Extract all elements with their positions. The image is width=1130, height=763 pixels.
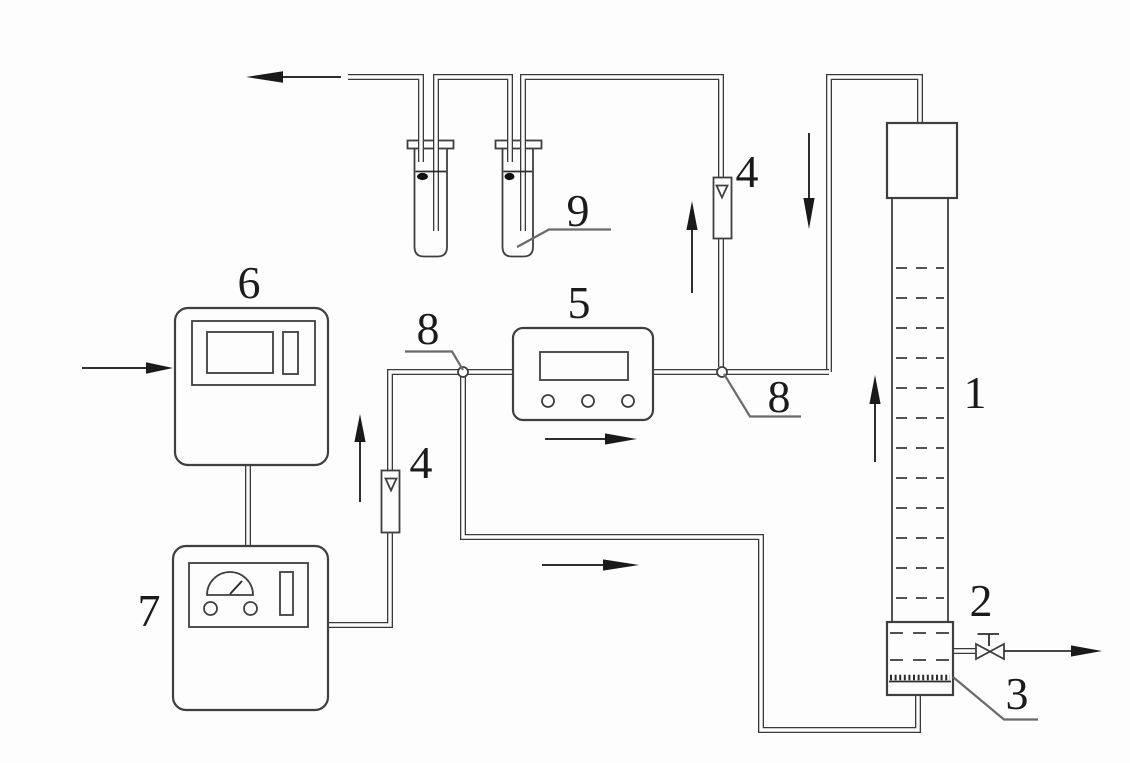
arrow-down-return-icon xyxy=(803,133,814,229)
arrow-up-column-icon xyxy=(869,375,880,462)
knob-left xyxy=(204,602,217,615)
button-1 xyxy=(542,395,554,407)
packed-column xyxy=(887,123,957,695)
label-flowmeter-left: 4 xyxy=(410,440,433,486)
leader-junction-left xyxy=(405,352,463,371)
label-meter-unit: 5 xyxy=(568,280,591,326)
label-gas-distributor: 3 xyxy=(1006,671,1029,717)
label-column: 1 xyxy=(964,370,987,416)
display-window xyxy=(207,332,273,373)
label-column-base: 2 xyxy=(970,578,993,624)
arrow-right-meter-icon xyxy=(545,433,637,444)
button-2 xyxy=(582,395,594,407)
bubbler-cap-right xyxy=(496,141,542,149)
arrow-inlet-controller-icon xyxy=(82,362,173,374)
meter-unit xyxy=(513,328,653,420)
label-junction-right: 8 xyxy=(768,374,791,420)
arrow-right-feed-icon xyxy=(542,559,639,570)
leader-bubbler xyxy=(517,230,611,248)
liquid-meniscus xyxy=(505,173,515,180)
controller-unit xyxy=(175,308,328,465)
switch-slot xyxy=(280,572,293,615)
label-junction-left: 8 xyxy=(417,306,440,352)
drain-valve xyxy=(976,634,1074,659)
pipe-feed-to-column-bottom xyxy=(463,372,918,730)
arrow-drain-outlet-icon xyxy=(1071,645,1102,656)
power-unit xyxy=(173,546,328,710)
knob-right xyxy=(244,602,257,615)
arrow-up-flowmeter-left-icon xyxy=(354,414,365,502)
column-body xyxy=(892,198,948,622)
label-power-unit: 7 xyxy=(138,588,161,634)
button-3 xyxy=(622,395,634,407)
schematic-drawing xyxy=(0,0,1130,763)
pipe-feed-to-column-bottom xyxy=(463,372,918,730)
bubbler-cap-left xyxy=(408,141,454,149)
label-controller-unit: 6 xyxy=(238,260,261,306)
arrow-gas-outlet-icon xyxy=(246,71,341,83)
liquid-meniscus xyxy=(417,173,428,180)
column-top-cap xyxy=(887,123,957,198)
flowmeter-right xyxy=(714,178,732,239)
label-absorber-bottle: 9 xyxy=(567,188,590,234)
diagram-canvas: 1 2 3 4 4 5 6 7 8 8 9 xyxy=(0,0,1130,763)
bubbler-left xyxy=(415,149,448,257)
display-window xyxy=(540,352,628,380)
flowmeter-left xyxy=(382,471,400,533)
label-flowmeter-right: 4 xyxy=(736,149,759,195)
arrow-up-flowmeter-right-icon xyxy=(686,201,697,293)
side-slot xyxy=(283,332,298,374)
